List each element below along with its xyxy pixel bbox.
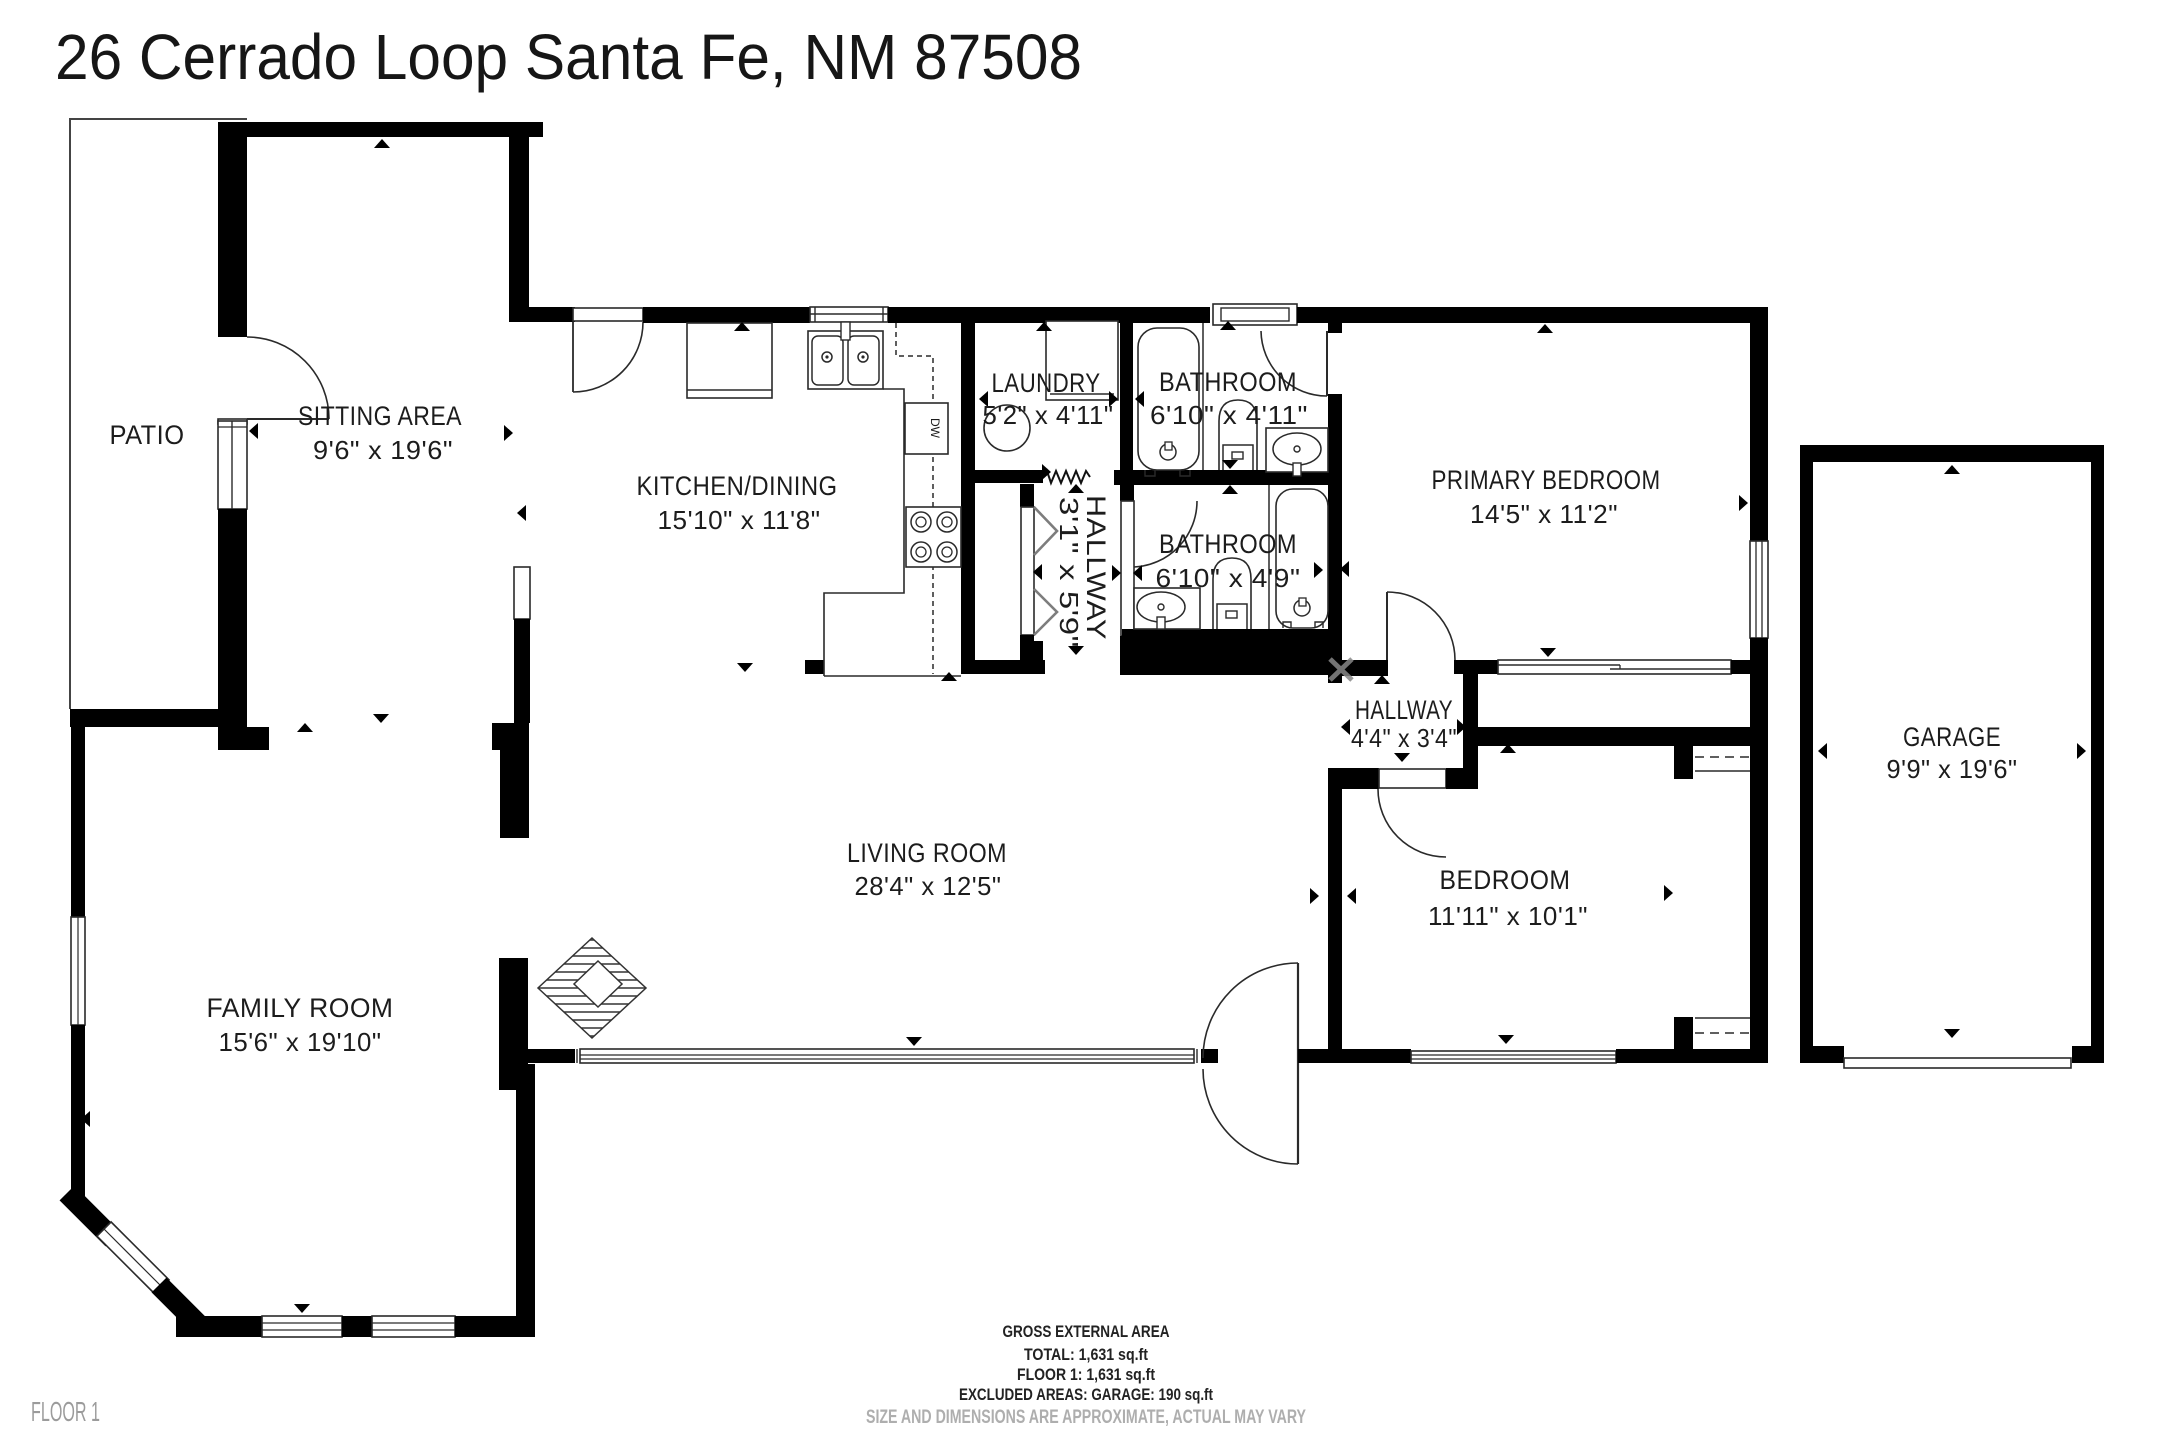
svg-text:TOTAL: 1,631 sq.ft: TOTAL: 1,631 sq.ft <box>1024 1346 1148 1364</box>
svg-text:15'6" x 19'10": 15'6" x 19'10" <box>219 1027 382 1057</box>
svg-text:BATHROOM: BATHROOM <box>1159 367 1297 397</box>
svg-text:GROSS EXTERNAL AREA: GROSS EXTERNAL AREA <box>1003 1323 1170 1341</box>
svg-text:28'4" x 12'5": 28'4" x 12'5" <box>855 871 1002 901</box>
svg-text:DW: DW <box>928 418 942 439</box>
svg-text:EXCLUDED AREAS: GARAGE: 190 sq: EXCLUDED AREAS: GARAGE: 190 sq.ft <box>959 1386 1213 1404</box>
svg-text:15'10" x 11'8": 15'10" x 11'8" <box>658 505 821 535</box>
svg-text:LAUNDRY: LAUNDRY <box>992 368 1101 398</box>
svg-text:PRIMARY BEDROOM: PRIMARY BEDROOM <box>1432 465 1661 495</box>
svg-text:3'1" x 5'9": 3'1" x 5'9" <box>1054 497 1084 648</box>
svg-text:HALLWAY: HALLWAY <box>1081 495 1111 640</box>
svg-text:26 Cerrado Loop Santa Fe, NM 8: 26 Cerrado Loop Santa Fe, NM 87508 <box>55 21 1082 93</box>
svg-text:LIVING ROOM: LIVING ROOM <box>847 838 1007 868</box>
svg-text:11'11" x 10'1": 11'11" x 10'1" <box>1428 901 1588 931</box>
svg-text:FAMILY ROOM: FAMILY ROOM <box>207 993 394 1023</box>
svg-text:HALLWAY: HALLWAY <box>1355 695 1453 725</box>
svg-text:BEDROOM: BEDROOM <box>1440 865 1571 895</box>
svg-text:FLOOR 1: FLOOR 1 <box>31 1396 100 1427</box>
svg-text:6'10" x 4'11": 6'10" x 4'11" <box>1150 400 1308 430</box>
svg-text:4'4" x 3'4": 4'4" x 3'4" <box>1351 723 1457 753</box>
svg-text:SIZE AND DIMENSIONS ARE APPROX: SIZE AND DIMENSIONS ARE APPROXIMATE, ACT… <box>866 1407 1306 1428</box>
svg-text:6'10" x 4'9": 6'10" x 4'9" <box>1156 563 1301 593</box>
svg-text:PATIO: PATIO <box>110 420 185 450</box>
svg-text:BATHROOM: BATHROOM <box>1159 529 1297 559</box>
svg-text:GARAGE: GARAGE <box>1903 722 2001 752</box>
svg-text:14'5" x 11'2": 14'5" x 11'2" <box>1470 499 1618 529</box>
svg-text:9'9" x 19'6": 9'9" x 19'6" <box>1887 754 2018 784</box>
svg-text:FLOOR 1: 1,631 sq.ft: FLOOR 1: 1,631 sq.ft <box>1017 1366 1155 1384</box>
svg-text:9'6" x 19'6": 9'6" x 19'6" <box>313 435 453 465</box>
svg-text:5'2" x 4'11": 5'2" x 4'11" <box>983 400 1114 430</box>
svg-text:SITTING AREA: SITTING AREA <box>298 401 462 431</box>
svg-text:KITCHEN/DINING: KITCHEN/DINING <box>637 471 838 501</box>
